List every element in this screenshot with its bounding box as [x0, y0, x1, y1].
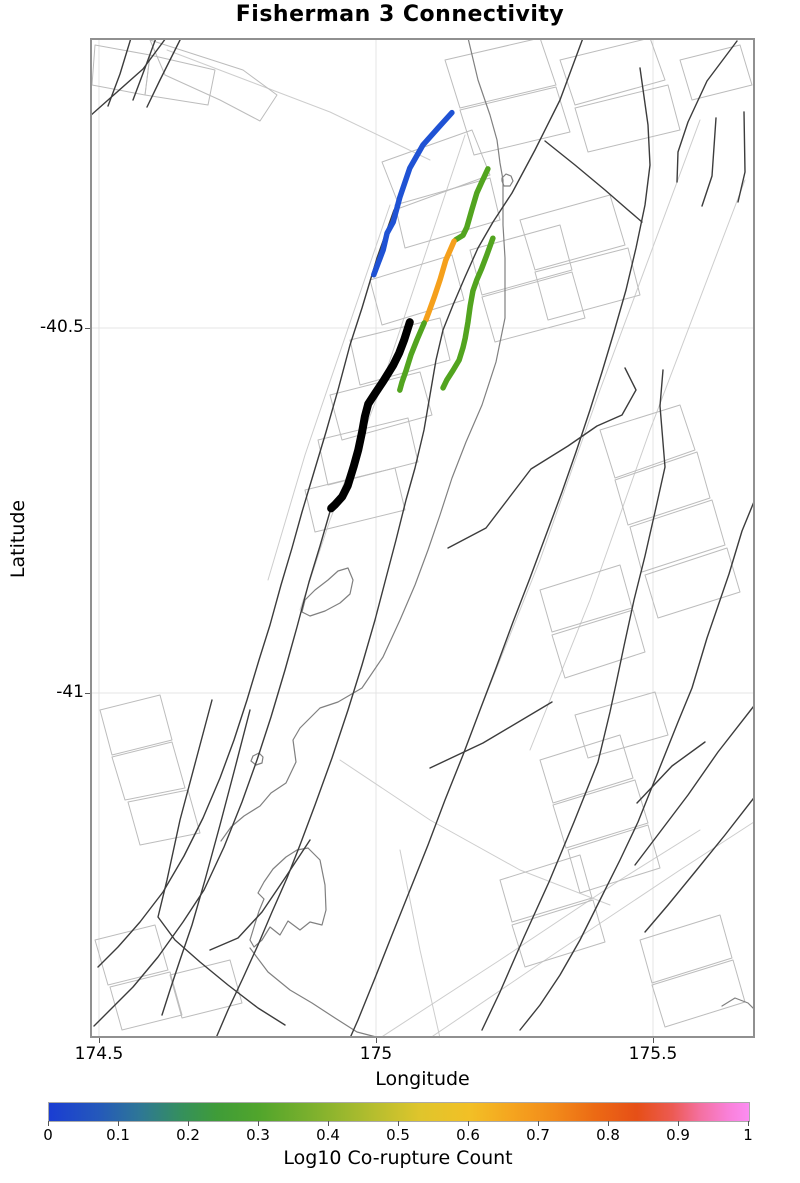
colorbar-tick-label: 1: [743, 1126, 753, 1144]
coastline: [502, 174, 513, 186]
coastline: [302, 568, 353, 616]
fault-trace: [738, 112, 745, 202]
fault-trace: [158, 700, 285, 1025]
colorbar-tick-label: 0.4: [316, 1126, 340, 1144]
fault-trace: [545, 141, 642, 222]
colorbar: [48, 1102, 750, 1122]
colorbar-tick-mark: [118, 1121, 119, 1126]
colorbar-tick-mark: [48, 1121, 49, 1126]
fault-plane-outline: [540, 735, 633, 803]
x-tick-mark: [653, 1038, 654, 1043]
colorbar-tick-mark: [608, 1121, 609, 1126]
x-tick-mark: [376, 1038, 377, 1043]
fault-trace: [637, 742, 705, 803]
colorbar-tick-label: 0.9: [666, 1126, 690, 1144]
map-plot-area: [90, 38, 755, 1038]
colorbar-tick-label: 0.7: [526, 1126, 550, 1144]
y-tick-mark: [85, 328, 90, 329]
fault-plane-outline: [445, 38, 556, 108]
fault-plane-outline: [112, 742, 185, 800]
colorbar-tick-label: 0.6: [456, 1126, 480, 1144]
fault-trace: [482, 370, 665, 1030]
x-tick-label: 175.5: [629, 1044, 678, 1064]
fault-trace: [520, 487, 755, 1030]
fault-trace: [448, 368, 636, 548]
fault-plane-edge: [430, 820, 755, 1038]
colorbar-tick-label: 0.2: [176, 1126, 200, 1144]
colorbar-tick-label: 0.3: [246, 1126, 270, 1144]
fault-trace: [702, 118, 716, 206]
x-tick-label: 174.5: [75, 1044, 124, 1064]
fault-plane-outline: [460, 87, 570, 155]
x-tick-label: 175: [360, 1044, 392, 1064]
coastline: [250, 848, 326, 947]
fault-plane-outline: [305, 468, 405, 532]
x-axis-label: Longitude: [90, 1068, 755, 1090]
figure: Fisherman 3 Connectivity Latitude Longit…: [0, 0, 800, 1183]
fault-plane-outline: [600, 405, 695, 478]
colorbar-tick-mark: [748, 1121, 749, 1126]
y-tick-label: -40.5: [0, 317, 84, 337]
coastline: [250, 948, 380, 1038]
colorbar-tick-mark: [678, 1121, 679, 1126]
fault-trace: [216, 38, 583, 1038]
fault-plane-outline: [150, 40, 277, 121]
colorbar-tick-label: 0.5: [386, 1126, 410, 1144]
colorbar-tick-mark: [258, 1121, 259, 1126]
fault-trace: [430, 702, 552, 768]
corupture-section-orange: [426, 241, 454, 320]
fault-plane-edge: [400, 850, 440, 1038]
fault-plane-edge: [300, 135, 465, 610]
y-tick-mark: [85, 693, 90, 694]
fault-plane-edge: [380, 830, 700, 1038]
chart-title: Fisherman 3 Connectivity: [0, 2, 800, 27]
fault-trace: [162, 710, 250, 1015]
fault-plane-outline: [535, 248, 640, 320]
fault-plane-outline: [145, 55, 215, 105]
fault-trace: [133, 38, 156, 100]
fault-plane-outline: [652, 960, 745, 1027]
y-axis-label: Latitude: [7, 479, 29, 599]
fault-plane-outline: [552, 610, 645, 678]
fault-plane-outline: [640, 915, 732, 983]
fault-plane-outline: [520, 195, 625, 270]
y-tick-label: -41: [0, 682, 84, 702]
colorbar-tick-label: 0.8: [596, 1126, 620, 1144]
fault-plane-outline: [680, 45, 752, 100]
fault-plane-outline: [100, 695, 172, 755]
coastline: [722, 998, 755, 1020]
fault-trace: [677, 41, 737, 182]
x-tick-mark: [99, 1038, 100, 1043]
colorbar-tick-mark: [328, 1121, 329, 1126]
fault-plane-outline: [128, 790, 200, 845]
fault-plane-outline: [560, 38, 665, 105]
fault-plane-outline: [568, 825, 660, 893]
colorbar-tick-mark: [468, 1121, 469, 1126]
colorbar-tick-mark: [538, 1121, 539, 1126]
fault-plane-outline: [575, 85, 680, 152]
corupture-section-green-upper: [456, 169, 488, 240]
colorbar-tick-label: 0: [43, 1126, 53, 1144]
fault-plane-outline: [482, 272, 585, 342]
fault-plane-outline: [575, 692, 668, 758]
fault-trace: [645, 790, 755, 932]
fault-plane-outline: [95, 925, 168, 985]
colorbar-label: Log10 Co-rupture Count: [48, 1147, 748, 1169]
colorbar-tick-mark: [188, 1121, 189, 1126]
colorbar-tick-mark: [398, 1121, 399, 1126]
fault-plane-outline: [540, 565, 632, 632]
colorbar-tick-label: 0.1: [106, 1126, 130, 1144]
fault-plane-edge: [530, 180, 745, 750]
